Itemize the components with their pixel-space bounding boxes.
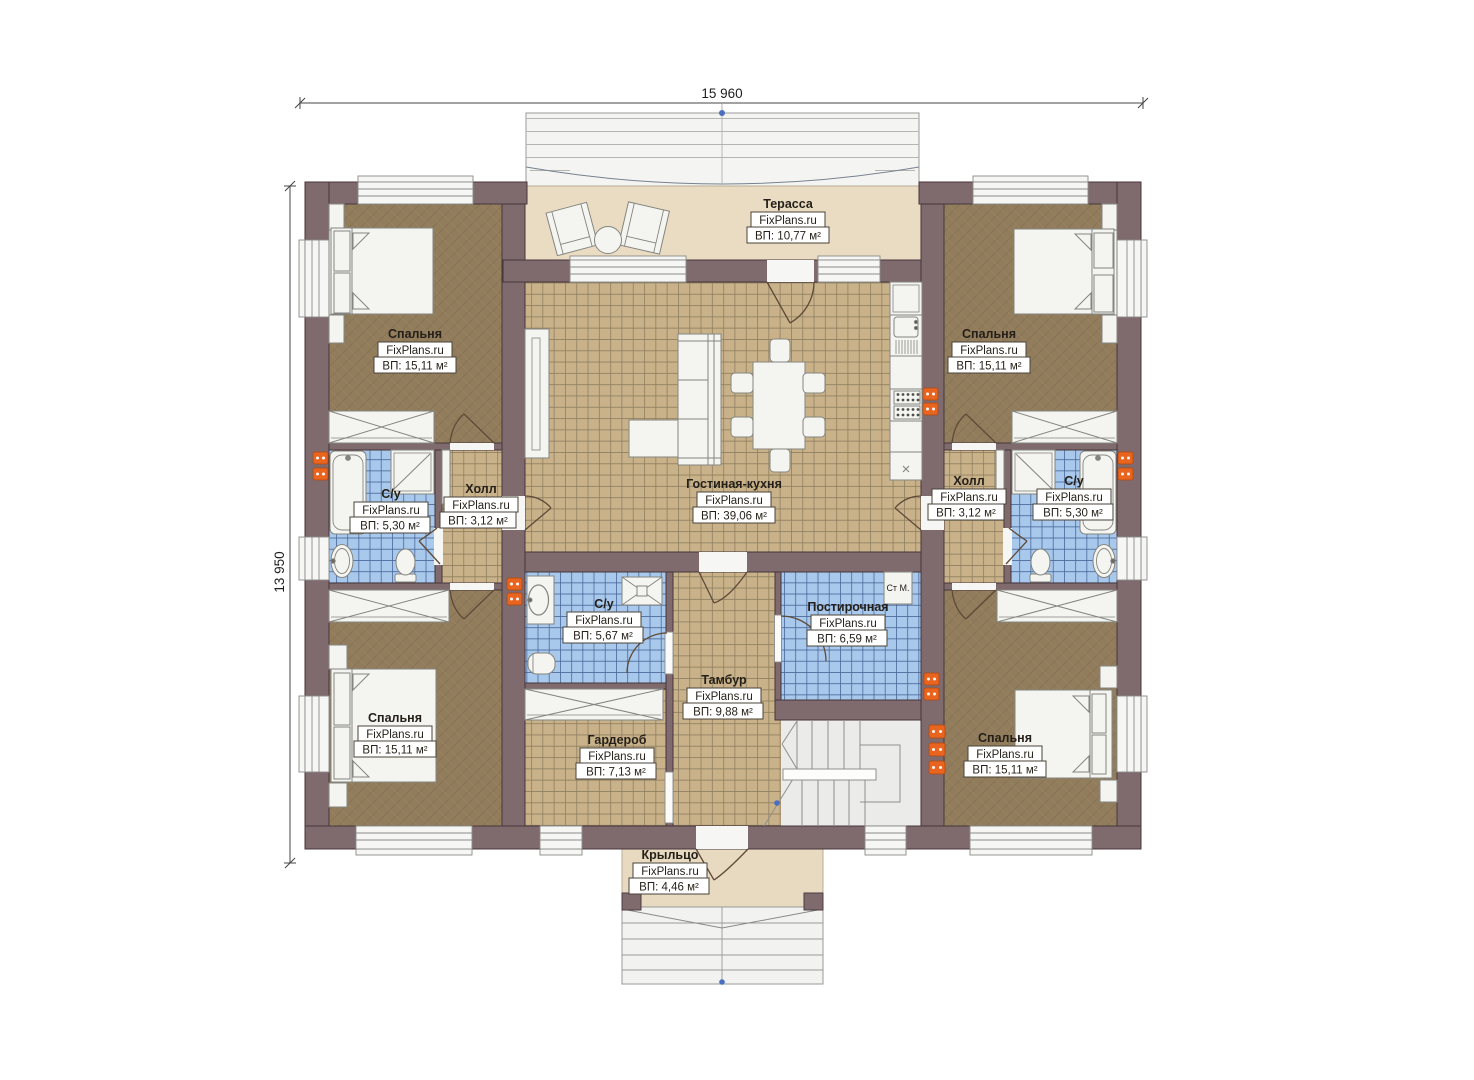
- svg-text:ВП: 6,59 м²: ВП: 6,59 м²: [817, 634, 877, 646]
- svg-text:ВП: 15,11 м²: ВП: 15,11 м²: [382, 361, 447, 373]
- svg-text:ВП: 3,12 м²: ВП: 3,12 м²: [936, 508, 996, 520]
- svg-text:FixPlans.ru: FixPlans.ru: [976, 749, 1034, 761]
- svg-text:FixPlans.ru: FixPlans.ru: [960, 345, 1018, 357]
- svg-text:FixPlans.ru: FixPlans.ru: [452, 500, 510, 512]
- svg-text:15 960: 15 960: [701, 86, 742, 101]
- svg-text:Спальня: Спальня: [368, 711, 422, 725]
- svg-text:ВП: 15,11 м²: ВП: 15,11 м²: [956, 361, 1021, 373]
- svg-text:ВП: 10,77 м²: ВП: 10,77 м²: [755, 231, 821, 243]
- svg-text:FixPlans.ru: FixPlans.ru: [705, 495, 763, 507]
- svg-text:Спальня: Спальня: [388, 327, 442, 341]
- svg-text:ВП: 15,11 м²: ВП: 15,11 м²: [972, 765, 1037, 777]
- svg-text:Постирочная: Постирочная: [807, 600, 888, 614]
- svg-text:ВП: 39,06 м²: ВП: 39,06 м²: [701, 511, 767, 523]
- svg-text:ВП: 4,46 м²: ВП: 4,46 м²: [639, 882, 699, 894]
- svg-text:FixPlans.ru: FixPlans.ru: [641, 866, 699, 878]
- svg-text:FixPlans.ru: FixPlans.ru: [940, 492, 998, 504]
- svg-text:Холл: Холл: [953, 474, 984, 488]
- svg-text:ВП: 15,11 м²: ВП: 15,11 м²: [362, 745, 427, 757]
- svg-text:ВП: 5,67 м²: ВП: 5,67 м²: [573, 631, 633, 643]
- svg-text:FixPlans.ru: FixPlans.ru: [362, 505, 420, 517]
- svg-text:Гардероб: Гардероб: [587, 733, 646, 747]
- svg-text:FixPlans.ru: FixPlans.ru: [695, 691, 753, 703]
- svg-text:FixPlans.ru: FixPlans.ru: [386, 345, 444, 357]
- svg-text:Спальня: Спальня: [978, 731, 1032, 745]
- svg-text:Тамбур: Тамбур: [701, 673, 747, 687]
- svg-text:FixPlans.ru: FixPlans.ru: [366, 729, 424, 741]
- svg-text:13 950: 13 950: [272, 551, 287, 592]
- svg-text:FixPlans.ru: FixPlans.ru: [759, 215, 817, 227]
- svg-text:Крыльцо: Крыльцо: [642, 848, 699, 862]
- svg-text:FixPlans.ru: FixPlans.ru: [575, 615, 633, 627]
- svg-text:ВП: 5,30 м²: ВП: 5,30 м²: [360, 521, 420, 533]
- svg-text:FixPlans.ru: FixPlans.ru: [588, 751, 646, 763]
- svg-text:С/у: С/у: [381, 487, 401, 501]
- svg-text:ВП: 5,30 м²: ВП: 5,30 м²: [1043, 508, 1103, 520]
- svg-text:Гостиная-кухня: Гостиная-кухня: [686, 477, 782, 491]
- svg-text:Ст М.: Ст М.: [886, 583, 909, 593]
- svg-text:Терасса: Терасса: [763, 197, 814, 211]
- svg-text:Холл: Холл: [465, 482, 496, 496]
- svg-text:ВП: 9,88 м²: ВП: 9,88 м²: [693, 707, 753, 719]
- svg-text:С/у: С/у: [594, 597, 614, 611]
- svg-text:С/у: С/у: [1064, 474, 1084, 488]
- svg-text:FixPlans.ru: FixPlans.ru: [819, 618, 877, 630]
- svg-text:ВП: 7,13 м²: ВП: 7,13 м²: [586, 767, 646, 779]
- svg-text:Спальня: Спальня: [962, 327, 1016, 341]
- svg-text:FixPlans.ru: FixPlans.ru: [1045, 492, 1103, 504]
- svg-text:ВП: 3,12 м²: ВП: 3,12 м²: [448, 516, 508, 528]
